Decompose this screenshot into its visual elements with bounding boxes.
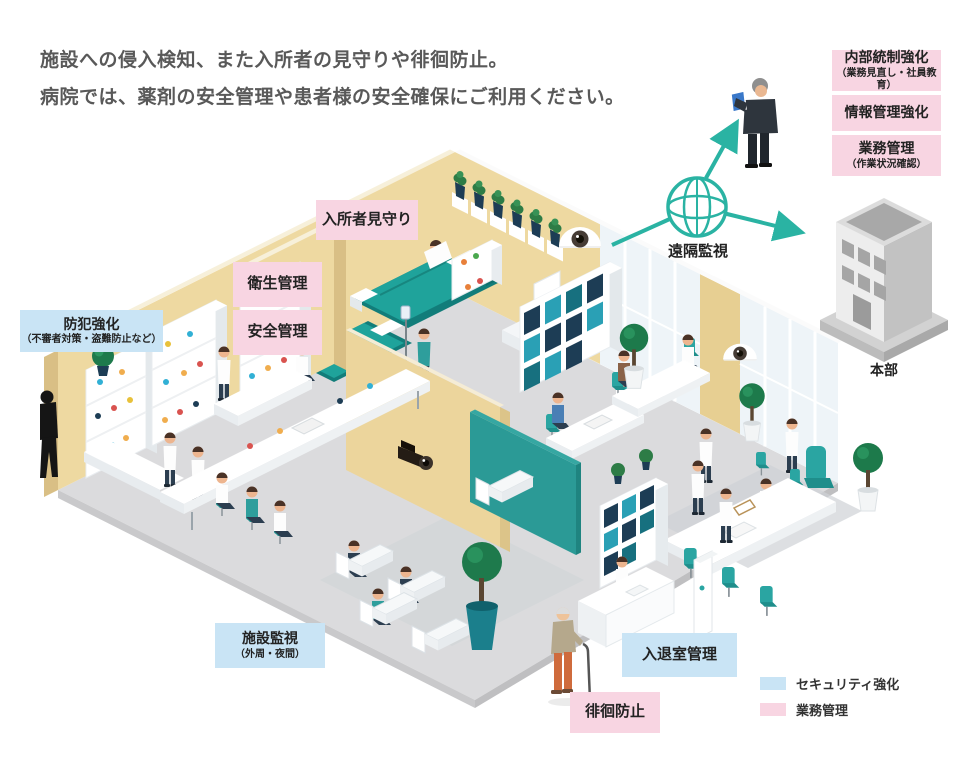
infographic-root: 施設への侵入検知、また入所者の見守りや徘徊防止。 病院では、薬剤の安全管理や患者… — [0, 0, 960, 771]
legend-swatch-operations — [760, 703, 786, 716]
benefit-title: 情報管理強化 — [845, 104, 929, 122]
label-text: 安全管理 — [247, 323, 307, 342]
label-subtext: （不審者対策・盗難防止など） — [22, 334, 162, 346]
benefit-internal-control: 内部統制強化 （業務見直し・社員教育） — [832, 50, 941, 91]
label-hygiene: 衛生管理 — [233, 262, 322, 307]
manager-with-tablet-figure — [731, 78, 778, 168]
label-text: 衛生管理 — [247, 275, 307, 294]
benefit-sub: （作業状況確認） — [847, 159, 927, 171]
headquarters-label: 本部 — [858, 360, 910, 380]
label-crime-prevention: 防犯強化 （不審者対策・盗難防止など） — [20, 310, 163, 352]
label-safety: 安全管理 — [233, 310, 322, 355]
remote-monitoring-label: 遠隔監視 — [662, 240, 734, 261]
label-wandering-prevention: 徘徊防止 — [570, 692, 660, 733]
label-text: 入退室管理 — [642, 646, 717, 665]
legend-row-operations: 業務管理 — [760, 700, 899, 719]
label-text: 施設監視 — [242, 630, 298, 648]
headquarters-building-icon — [820, 198, 948, 362]
label-subtext: （外周・夜間） — [235, 649, 305, 661]
legend-row-security: セキュリティ強化 — [760, 674, 899, 693]
benefit-title: 業務管理 — [859, 140, 915, 158]
label-facility-monitor: 施設監視 （外周・夜間） — [215, 623, 325, 668]
label-text: 徘徊防止 — [585, 703, 645, 722]
label-text: 防犯強化 — [64, 316, 120, 334]
benefit-title: 内部統制強化 — [845, 49, 929, 67]
benefit-information-management: 情報管理強化 — [832, 95, 941, 131]
intro-text: 施設への侵入検知、また入所者の見守りや徘徊防止。 病院では、薬剤の安全管理や患者… — [40, 42, 625, 116]
benefit-sub: （業務見直し・社員教育） — [832, 68, 941, 92]
benefit-operations-management: 業務管理 （作業状況確認） — [832, 135, 941, 176]
legend: セキュリティ強化 業務管理 — [760, 674, 899, 719]
legend-label-operations: 業務管理 — [796, 700, 848, 719]
label-entry-exit: 入退室管理 — [622, 633, 737, 677]
label-text: 入所者見守り — [322, 211, 412, 230]
legend-label-security: セキュリティ強化 — [796, 674, 899, 693]
intro-line-2: 病院では、薬剤の安全管理や患者様の安全確保にご利用ください。 — [40, 79, 625, 116]
legend-swatch-security — [760, 677, 786, 690]
intro-line-1: 施設への侵入検知、また入所者の見守りや徘徊防止。 — [40, 42, 625, 79]
globe-network-icon — [668, 178, 726, 236]
label-resident-watch: 入所者見守り — [316, 200, 418, 240]
